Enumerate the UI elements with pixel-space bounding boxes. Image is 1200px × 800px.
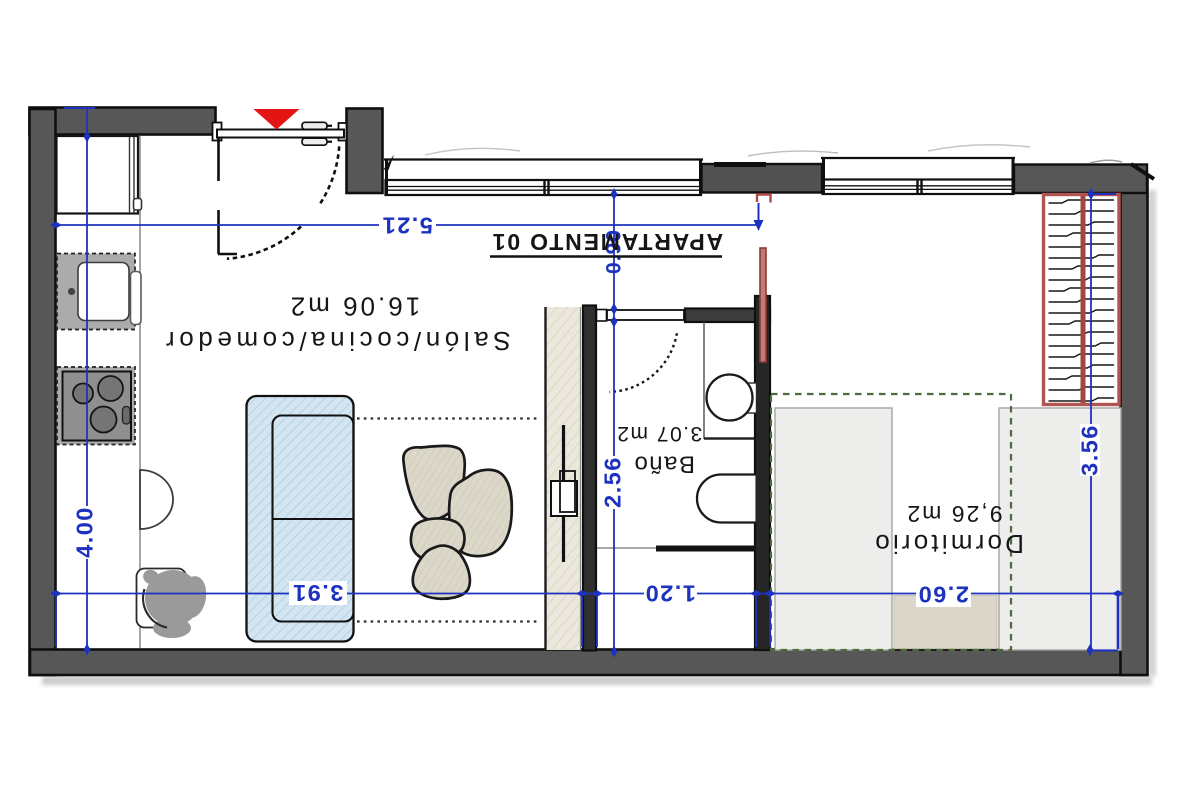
svg-text:9,26 m2: 9,26 m2 — [905, 501, 1002, 527]
svg-text:3.91: 3.91 — [292, 580, 344, 606]
svg-text:3.07 m2: 3.07 m2 — [616, 422, 702, 445]
svg-text:3.56: 3.56 — [1077, 424, 1103, 476]
svg-text:Baño: Baño — [633, 451, 695, 478]
svg-text:1.20: 1.20 — [644, 581, 696, 607]
svg-text:Salón/cocina/comedor: Salón/cocina/comedor — [161, 326, 510, 356]
svg-text:Dormitorio: Dormitorio — [872, 529, 1024, 559]
svg-text:5.21: 5.21 — [381, 213, 433, 239]
svg-text:2.56: 2.56 — [600, 456, 626, 508]
svg-text:4.00: 4.00 — [72, 506, 98, 558]
svg-text:16.06 m2: 16.06 m2 — [288, 292, 420, 322]
svg-text:2.60: 2.60 — [917, 582, 969, 608]
svg-text:APARTAMENTO 01: APARTAMENTO 01 — [491, 229, 723, 255]
